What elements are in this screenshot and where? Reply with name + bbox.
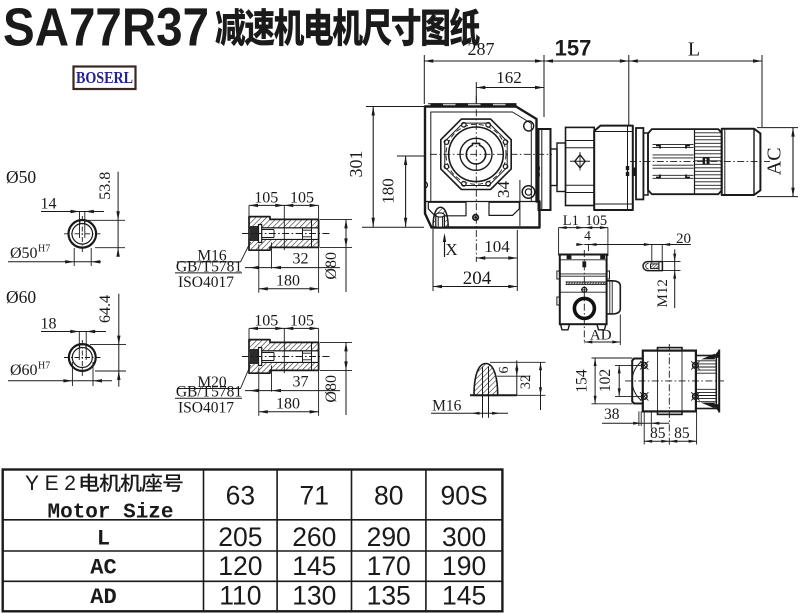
svg-text:260: 260 (292, 522, 336, 552)
svg-text:104: 104 (484, 237, 510, 256)
svg-text:32: 32 (518, 375, 534, 390)
svg-text:ISO4017: ISO4017 (178, 274, 234, 291)
svg-text:L: L (688, 39, 700, 61)
svg-text:102: 102 (597, 369, 614, 392)
svg-text:154: 154 (574, 369, 591, 393)
svg-text:34: 34 (494, 181, 513, 199)
svg-text:180: 180 (276, 395, 300, 412)
svg-text:14: 14 (41, 196, 57, 213)
svg-text:80: 80 (374, 481, 403, 511)
svg-text:Ø80: Ø80 (323, 375, 340, 403)
svg-text:110: 110 (219, 581, 261, 611)
svg-text:157: 157 (555, 36, 592, 61)
svg-text:190: 190 (442, 551, 486, 581)
svg-text:BOSERL: BOSERL (76, 68, 133, 87)
svg-text:301: 301 (346, 151, 366, 178)
svg-text:205: 205 (218, 522, 262, 552)
svg-text:290: 290 (367, 522, 411, 552)
svg-text:4: 4 (584, 228, 591, 243)
svg-text:Ø50: Ø50 (10, 245, 38, 262)
svg-text:170: 170 (367, 551, 411, 581)
svg-text:38: 38 (604, 406, 620, 423)
svg-text:63: 63 (226, 481, 255, 511)
svg-text:Ø60: Ø60 (10, 362, 38, 379)
svg-text:287: 287 (468, 39, 495, 59)
svg-text:Ø80: Ø80 (323, 252, 340, 280)
svg-text:180: 180 (379, 178, 398, 204)
svg-text:20: 20 (676, 231, 691, 247)
svg-text:53.8: 53.8 (97, 172, 114, 200)
svg-text:Motor Size: Motor Size (47, 502, 173, 525)
svg-text:Ø60: Ø60 (6, 287, 36, 307)
svg-text:M12: M12 (655, 279, 671, 307)
svg-text:6: 6 (497, 367, 512, 374)
svg-text:37: 37 (293, 373, 309, 390)
svg-text:90S: 90S (441, 481, 488, 511)
svg-text:Ø50: Ø50 (6, 167, 36, 187)
svg-text:32: 32 (293, 250, 309, 267)
svg-text:85: 85 (650, 425, 666, 442)
svg-text:L: L (97, 527, 110, 552)
svg-text:64.4: 64.4 (97, 295, 114, 323)
svg-text:162: 162 (496, 68, 522, 87)
svg-text:AD: AD (90, 585, 116, 610)
svg-text:ISO4017: ISO4017 (178, 399, 234, 416)
svg-text:X: X (445, 240, 457, 259)
svg-text:M16: M16 (432, 398, 462, 415)
svg-text:120: 120 (218, 551, 262, 581)
svg-text:105: 105 (585, 213, 607, 229)
svg-text:H7: H7 (38, 244, 50, 255)
svg-text:300: 300 (442, 522, 486, 552)
svg-text:SA77R37: SA77R37 (3, 0, 209, 58)
svg-text:180: 180 (276, 272, 300, 289)
svg-text:AD: AD (590, 328, 612, 344)
svg-text:130: 130 (292, 581, 336, 611)
svg-text:204: 204 (463, 268, 492, 289)
svg-text:18: 18 (41, 316, 57, 333)
svg-text:85: 85 (674, 425, 690, 442)
svg-text:AC: AC (764, 147, 786, 175)
svg-text:71: 71 (300, 481, 329, 511)
svg-text:YE2: YE2 (25, 472, 82, 495)
svg-text:145: 145 (442, 581, 486, 611)
svg-text:135: 135 (367, 581, 411, 611)
svg-text:AC: AC (90, 556, 116, 581)
svg-text:H7: H7 (38, 361, 50, 372)
svg-text:145: 145 (292, 551, 336, 581)
